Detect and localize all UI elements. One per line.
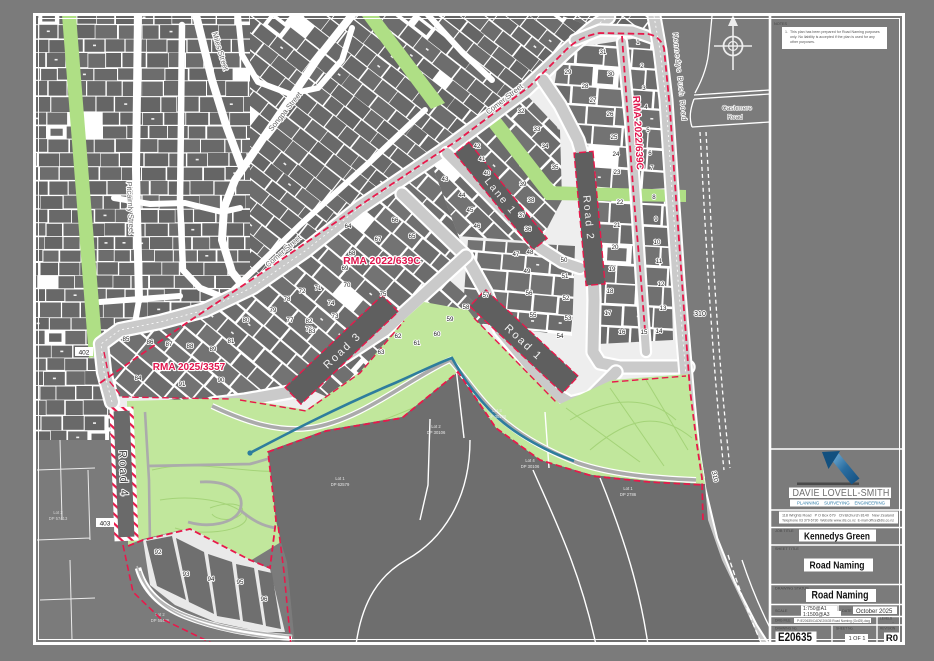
svg-text:October 2025: October 2025 <box>856 609 893 615</box>
svg-text:89: 89 <box>210 346 217 353</box>
svg-text:35: 35 <box>552 164 559 171</box>
svg-text:5: 5 <box>646 127 650 134</box>
svg-text:1: 1 <box>636 39 640 46</box>
svg-text:41: 41 <box>479 156 486 163</box>
svg-text:84: 84 <box>135 375 142 382</box>
svg-text:70: 70 <box>344 282 351 289</box>
svg-text:50: 50 <box>561 257 568 264</box>
svg-text:Telephone 03 379 6730 Website: Telephone 03 379 6730 Website www.dls.co… <box>782 519 894 523</box>
svg-text:38: 38 <box>528 197 535 204</box>
svg-text:DAVIE LOVELL-SMITH: DAVIE LOVELL-SMITH <box>793 487 890 499</box>
svg-text:27: 27 <box>590 97 597 104</box>
svg-text:SHEET No.: SHEET No. <box>836 627 854 631</box>
svg-text:4: 4 <box>644 104 648 111</box>
svg-text:75: 75 <box>380 291 387 298</box>
svg-text:88: 88 <box>187 343 194 350</box>
svg-text:25: 25 <box>611 134 618 141</box>
svg-text:43: 43 <box>442 176 449 183</box>
svg-text:86: 86 <box>147 339 154 346</box>
svg-text:44: 44 <box>459 192 466 199</box>
svg-text:45: 45 <box>467 207 474 214</box>
svg-text:56: 56 <box>526 290 533 297</box>
svg-text:95: 95 <box>237 579 244 586</box>
svg-text:72: 72 <box>299 288 306 295</box>
svg-text:LEVELS: LEVELS <box>880 617 892 621</box>
svg-text:DRAWING STATUS: DRAWING STATUS <box>775 587 809 591</box>
svg-text:69: 69 <box>342 265 349 272</box>
svg-text:E20635: E20635 <box>778 632 813 644</box>
svg-text:65: 65 <box>409 233 416 240</box>
svg-text:10: 10 <box>654 239 661 246</box>
svg-text:42: 42 <box>474 143 481 150</box>
svg-text:32: 32 <box>518 108 525 115</box>
svg-text:91: 91 <box>179 381 186 388</box>
svg-text:17: 17 <box>605 310 612 317</box>
svg-text:1 OF 1: 1 OF 1 <box>849 636 866 642</box>
svg-text:62: 62 <box>395 333 402 340</box>
svg-text:49: 49 <box>524 268 531 275</box>
svg-text:71: 71 <box>315 285 322 292</box>
svg-text:31: 31 <box>600 49 607 56</box>
svg-text:37: 37 <box>519 212 526 219</box>
svg-text:15: 15 <box>641 329 648 336</box>
svg-text:DP 57413: DP 57413 <box>49 516 68 521</box>
svg-text:53: 53 <box>565 315 572 322</box>
svg-text:19: 19 <box>609 266 616 273</box>
svg-text:36: 36 <box>525 226 532 233</box>
svg-text:90: 90 <box>218 377 225 384</box>
svg-text:310: 310 <box>694 311 706 318</box>
svg-text:DP 62579: DP 62579 <box>331 482 350 487</box>
svg-text:Lot 2: Lot 2 <box>431 424 441 429</box>
svg-text:57: 57 <box>483 292 490 299</box>
svg-text:SCALE: SCALE <box>775 609 788 613</box>
svg-text:73: 73 <box>332 313 339 320</box>
svg-text:RMA 2025/3357: RMA 2025/3357 <box>153 362 226 373</box>
svg-text:28: 28 <box>582 83 589 90</box>
svg-text:DATE: DATE <box>842 609 852 613</box>
svg-text:7: 7 <box>650 165 654 172</box>
svg-text:58: 58 <box>463 304 470 311</box>
svg-text:R0: R0 <box>886 633 898 644</box>
svg-text:81: 81 <box>228 338 235 345</box>
svg-text:63: 63 <box>378 349 385 356</box>
svg-text:Lot 3: Lot 3 <box>492 408 502 413</box>
svg-text:9: 9 <box>654 216 658 223</box>
svg-text:78: 78 <box>284 296 291 303</box>
svg-text:79: 79 <box>270 307 277 314</box>
svg-text:48: 48 <box>527 249 534 256</box>
svg-text:DP 30106: DP 30106 <box>427 430 446 435</box>
svg-text:Kennedys Green: Kennedys Green <box>804 532 870 543</box>
svg-text:34: 34 <box>542 143 549 150</box>
svg-text:403: 403 <box>100 521 111 528</box>
svg-text:30: 30 <box>608 71 615 78</box>
svg-text:only. No liability is accepted: only. No liability is accepted if the pl… <box>790 35 875 39</box>
svg-text:22: 22 <box>617 199 624 206</box>
svg-text:8: 8 <box>652 194 656 201</box>
svg-text:NOTES: NOTES <box>774 22 788 26</box>
svg-text:39: 39 <box>520 181 527 188</box>
svg-text:Road Naming: Road Naming <box>812 590 869 602</box>
svg-text:80: 80 <box>243 317 250 324</box>
svg-text:47: 47 <box>513 251 520 258</box>
svg-text:DP 30106: DP 30106 <box>521 464 540 469</box>
svg-text:55: 55 <box>530 312 537 319</box>
svg-text:13: 13 <box>660 305 667 312</box>
svg-text:92: 92 <box>155 549 162 556</box>
svg-text:96: 96 <box>261 596 268 603</box>
svg-text:77: 77 <box>287 317 294 324</box>
svg-text:46: 46 <box>474 223 481 230</box>
svg-text:40: 40 <box>484 170 491 177</box>
svg-text:85: 85 <box>123 336 130 343</box>
svg-text:REVISION: REVISION <box>880 627 896 631</box>
svg-text:33: 33 <box>534 126 541 133</box>
svg-text:16: 16 <box>619 329 626 336</box>
svg-text:18: 18 <box>607 288 614 295</box>
svg-text:24: 24 <box>613 151 620 158</box>
svg-text:83: 83 <box>309 328 316 335</box>
svg-text:Road Naming: Road Naming <box>810 560 865 572</box>
svg-text:DRAWING No.: DRAWING No. <box>775 627 798 631</box>
svg-text:64: 64 <box>345 223 352 230</box>
svg-text:3: 3 <box>642 85 646 92</box>
svg-text:59: 59 <box>447 316 454 323</box>
svg-text:1.: 1. <box>785 30 788 34</box>
svg-text:SHEET TITLE: SHEET TITLE <box>775 547 799 551</box>
svg-text:Lot 4: Lot 4 <box>525 458 535 463</box>
svg-text:2: 2 <box>640 63 644 70</box>
svg-text:P:\E20635\CAD\E20635 Road Nami: P:\E20635\CAD\E20635 Road Naming (Oct25)… <box>797 619 870 623</box>
svg-text:93: 93 <box>183 571 190 578</box>
svg-text:other purposes.: other purposes. <box>790 40 815 44</box>
svg-text:68: 68 <box>349 250 356 257</box>
svg-text:82: 82 <box>306 318 313 325</box>
svg-text:DRG FILE: DRG FILE <box>775 619 791 623</box>
svg-text:51: 51 <box>562 273 569 280</box>
svg-text:23: 23 <box>614 169 621 176</box>
svg-text:12: 12 <box>658 281 665 288</box>
svg-text:1:1500@A3: 1:1500@A3 <box>803 612 830 618</box>
svg-text:26: 26 <box>607 111 614 118</box>
svg-text:14: 14 <box>656 328 663 335</box>
svg-text:Lot 1: Lot 1 <box>335 476 345 481</box>
svg-text:60: 60 <box>434 331 441 338</box>
svg-text:29: 29 <box>565 69 572 76</box>
svg-text:JOB TITLE: JOB TITLE <box>775 529 794 533</box>
svg-text:87: 87 <box>166 341 173 348</box>
svg-text:94: 94 <box>208 576 215 583</box>
svg-text:61: 61 <box>414 340 421 347</box>
svg-text:Road 4: Road 4 <box>116 450 130 498</box>
svg-text:52: 52 <box>563 295 570 302</box>
svg-text:DP 30106: DP 30106 <box>488 414 507 419</box>
svg-text:Lot 1: Lot 1 <box>623 486 633 491</box>
svg-text:6: 6 <box>648 150 652 157</box>
svg-text:67: 67 <box>375 236 382 243</box>
svg-text:118 Wrights Road P O Box 679: 118 Wrights Road P O Box 679 Christchurc… <box>782 514 894 518</box>
svg-text:Road: Road <box>727 114 743 121</box>
svg-text:74: 74 <box>328 300 335 307</box>
svg-text:DP 2786: DP 2786 <box>620 492 637 497</box>
svg-text:402: 402 <box>79 350 90 357</box>
svg-text:21: 21 <box>614 222 621 229</box>
svg-text:20: 20 <box>612 244 619 251</box>
svg-text:54: 54 <box>557 333 564 340</box>
svg-text:11: 11 <box>656 258 663 265</box>
svg-text:This plan has been prepared fo: This plan has been prepared for Road Nam… <box>790 30 880 34</box>
svg-text:Cashmere: Cashmere <box>722 105 752 112</box>
svg-text:PLANNING SURVEYING ENGIN: PLANNING SURVEYING ENGINEERING <box>797 501 886 506</box>
svg-text:66: 66 <box>392 217 399 224</box>
